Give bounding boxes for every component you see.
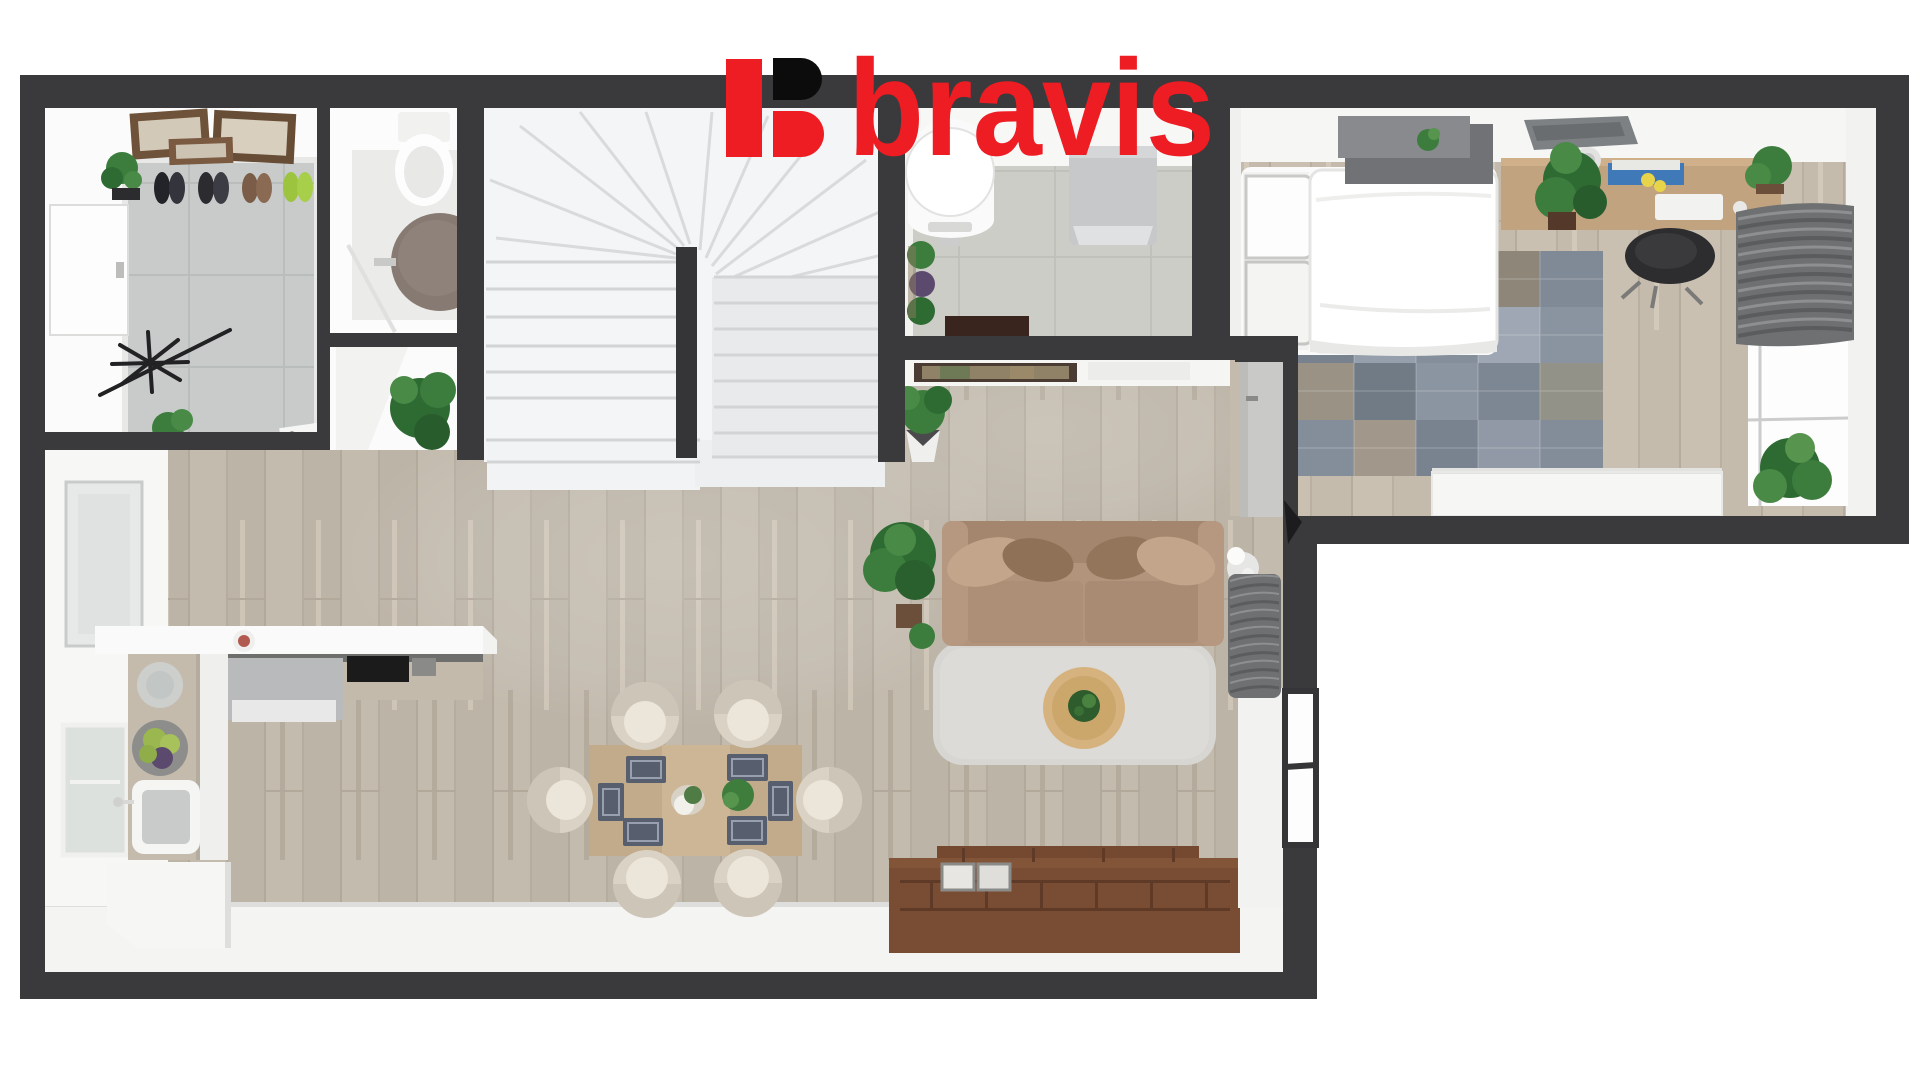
- svg-text:bravis: bravis: [848, 32, 1215, 185]
